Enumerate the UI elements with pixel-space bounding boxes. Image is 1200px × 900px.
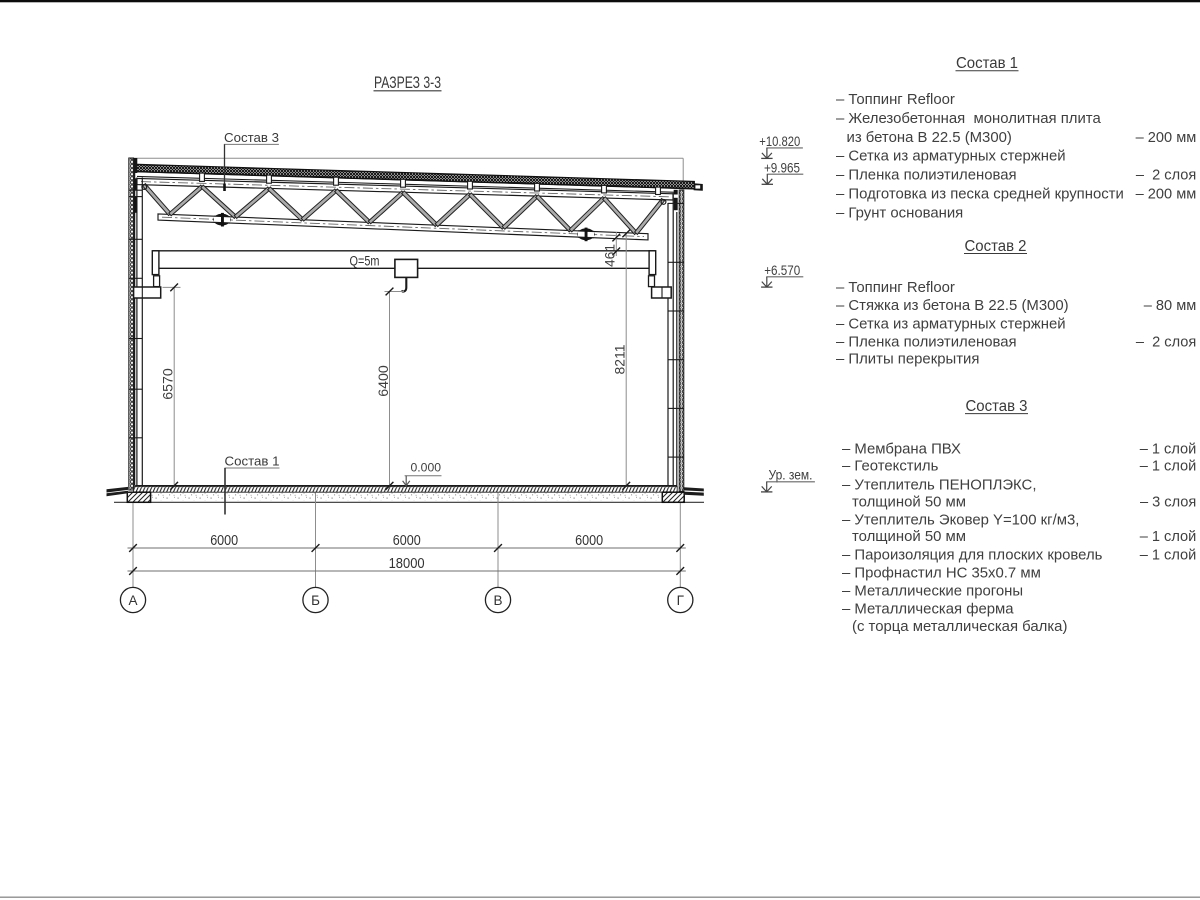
svg-text:– 200 мм: – 200 мм <box>1136 130 1197 146</box>
svg-text:Состав 3: Состав 3 <box>966 398 1028 415</box>
svg-text:РАЗРЕЗ 3-3: РАЗРЕЗ 3-3 <box>374 74 441 92</box>
svg-text:– 1 слой: – 1 слой <box>1140 548 1197 564</box>
svg-text:Ур. зем.: Ур. зем. <box>769 466 813 482</box>
svg-text:– Стяжка из бетона В 22.5 (М30: – Стяжка из бетона В 22.5 (М300) <box>836 298 1069 314</box>
svg-text:– 2 слоя: – 2 слоя <box>1136 168 1196 184</box>
svg-text:А: А <box>128 593 137 608</box>
svg-text:Состав 1: Состав 1 <box>956 55 1018 72</box>
svg-text:– Мембрана ПВХ: – Мембрана ПВХ <box>842 442 961 458</box>
svg-text:– 1 слой: – 1 слой <box>1140 442 1197 458</box>
svg-text:толщиной 50 мм: толщиной 50 мм <box>852 495 966 511</box>
svg-text:– 1 слой: – 1 слой <box>1140 459 1197 475</box>
svg-text:– Утеплитель ПЕНОПЛЭКС,: – Утеплитель ПЕНОПЛЭКС, <box>842 478 1036 494</box>
svg-text:+10.820: +10.820 <box>759 133 800 149</box>
svg-text:– Топпинг Refloor: – Топпинг Refloor <box>836 92 955 108</box>
svg-text:8211: 8211 <box>612 344 628 374</box>
svg-text:– Пленка полиэтиленовая: – Пленка полиэтиленовая <box>836 168 1017 184</box>
svg-text:(с торца металлическая балка): (с торца металлическая балка) <box>852 619 1067 635</box>
svg-text:– Подготовка из песка средней: – Подготовка из песка средней крупности <box>836 187 1124 203</box>
svg-text:– 80 мм: – 80 мм <box>1144 298 1197 314</box>
svg-text:– Утеплитель Эковер Y=100 кг/м: – Утеплитель Эковер Y=100 кг/м3, <box>842 513 1079 529</box>
svg-text:0.000: 0.000 <box>411 463 442 475</box>
svg-text:из бетона В 22.5 (М300): из бетона В 22.5 (М300) <box>847 130 1012 146</box>
svg-text:Состав 3: Состав 3 <box>224 131 279 145</box>
svg-text:Б: Б <box>311 593 320 608</box>
svg-text:В: В <box>493 593 502 608</box>
svg-text:– Железобетонная монолитная п: – Железобетонная монолитная плита <box>836 111 1101 127</box>
svg-text:– Грунт основания: – Грунт основания <box>836 205 963 221</box>
svg-text:6570: 6570 <box>159 368 175 400</box>
svg-text:– 3 слоя: – 3 слоя <box>1140 495 1196 511</box>
svg-text:– Геотекстиль: – Геотекстиль <box>842 459 939 475</box>
svg-text:– Металлические прогоны: – Металлические прогоны <box>842 584 1023 600</box>
svg-text:Q=5m: Q=5m <box>350 253 380 268</box>
svg-text:6000: 6000 <box>575 533 603 549</box>
svg-text:– Пароизоляция для плоских кро: – Пароизоляция для плоских кровель <box>842 548 1103 564</box>
svg-text:Состав 2: Состав 2 <box>965 238 1027 255</box>
svg-text:18000: 18000 <box>389 556 425 572</box>
svg-text:461: 461 <box>602 244 618 267</box>
svg-text:Г: Г <box>677 593 685 608</box>
svg-text:Состав 1: Состав 1 <box>225 455 280 469</box>
svg-text:– Металлическая ферма: – Металлическая ферма <box>842 602 1014 618</box>
svg-text:6000: 6000 <box>210 533 238 549</box>
svg-text:– Пленка полиэтиленовая: – Пленка полиэтиленовая <box>836 334 1017 350</box>
svg-text:– Сетка из арматурных стержней: – Сетка из арматурных стержней <box>836 149 1066 165</box>
svg-text:– Сетка из арматурных стержней: – Сетка из арматурных стержней <box>836 316 1066 332</box>
svg-text:– 200 мм: – 200 мм <box>1136 187 1197 203</box>
svg-text:6400: 6400 <box>375 365 391 397</box>
svg-text:– Плиты перекрытия: – Плиты перекрытия <box>836 352 979 368</box>
svg-text:+9.965: +9.965 <box>764 160 800 176</box>
svg-text:6000: 6000 <box>393 533 421 549</box>
svg-text:толщиной 50 мм: толщиной 50 мм <box>852 529 966 545</box>
svg-text:+6.570: +6.570 <box>764 262 800 278</box>
svg-text:– Топпинг Refloor: – Топпинг Refloor <box>836 280 955 296</box>
svg-text:– 2 слоя: – 2 слоя <box>1136 334 1196 350</box>
svg-text:– Профнастил НС 35х0.7 мм: – Профнастил НС 35х0.7 мм <box>842 566 1041 582</box>
svg-text:– 1 слой: – 1 слой <box>1140 529 1197 545</box>
